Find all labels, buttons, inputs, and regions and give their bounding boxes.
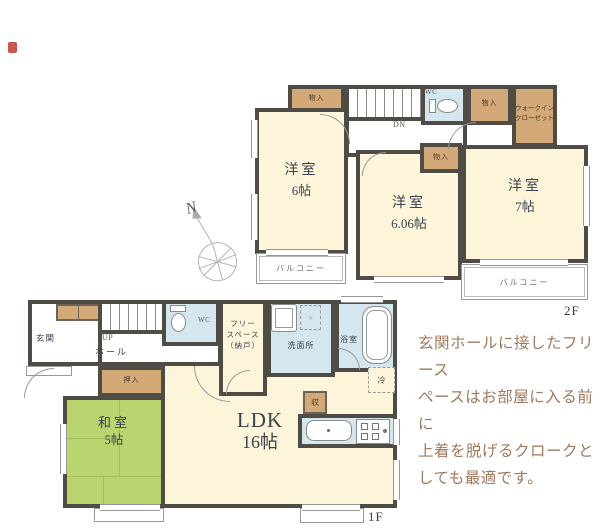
kitchen-stove-icon xyxy=(356,419,390,444)
room-2f-7jo-size: 7帖 xyxy=(462,198,588,216)
window xyxy=(251,194,258,240)
balcony-left-label: バルコニー xyxy=(276,263,326,274)
ldk-size: 16帖 xyxy=(210,430,310,454)
shoe-cabinet-icon xyxy=(56,304,100,321)
window xyxy=(341,296,383,303)
oshiire-label: 押入 xyxy=(98,375,165,385)
wic-label-line2: クローゼット xyxy=(512,112,557,122)
window xyxy=(302,504,360,511)
closet-2f-mid-label: 物入 xyxy=(420,152,462,162)
closet-2f-top-label: 物入 xyxy=(288,93,345,103)
window xyxy=(266,249,328,256)
washitsu-size: 5帖 xyxy=(63,432,165,449)
stairs-2f xyxy=(345,85,425,121)
window xyxy=(393,419,400,445)
window xyxy=(60,424,67,474)
annotation-line2: ペースはお部屋に入る前に xyxy=(418,384,606,438)
window xyxy=(480,259,568,266)
washitsu-name: 和室 xyxy=(63,414,165,432)
washing-machine-icon xyxy=(271,304,297,332)
stairs-1f xyxy=(98,300,166,334)
window xyxy=(100,504,160,511)
bathtub-icon xyxy=(362,306,392,364)
balcony-right-label: バルコニー xyxy=(500,277,550,288)
fridge-label: 冷 xyxy=(378,375,386,386)
wc-1f-label: WC xyxy=(198,316,210,324)
stove-burner-icon xyxy=(372,423,379,430)
room-2f-606jo-size: 6.06帖 xyxy=(356,215,462,233)
tatami-line xyxy=(103,476,104,504)
annotation-line3: 上着を脱げるクロークと xyxy=(418,438,606,465)
fridge-space-icon: 冷 xyxy=(368,367,395,393)
window xyxy=(251,120,258,158)
storage-box: 収 xyxy=(303,391,327,414)
stove-burner-icon xyxy=(361,433,368,440)
sink-faucet-icon xyxy=(327,429,330,432)
tatami-line xyxy=(67,476,161,477)
free-space-line3: （納戸） xyxy=(219,340,267,351)
washroom-label: 洗面所 xyxy=(267,340,335,351)
closet-2f-b-label: 物入 xyxy=(467,98,512,108)
toilet-2f-tank-icon xyxy=(429,99,436,113)
free-space-line2: スペース xyxy=(219,329,267,340)
floor-1f-label: 1F xyxy=(368,509,384,525)
stove-burner-icon xyxy=(372,433,379,440)
genkan-label: 玄関 xyxy=(36,332,55,344)
floor-2f-label: 2F xyxy=(564,303,580,319)
hall-label: ホール xyxy=(95,345,128,358)
free-space-line1: フリー xyxy=(219,318,267,329)
window xyxy=(583,166,590,226)
toilet-1f-bowl-icon xyxy=(171,313,186,332)
compass: N xyxy=(168,192,244,292)
stairs-dn-label: DN xyxy=(393,120,406,129)
balcony-2f-left: バルコニー xyxy=(256,253,346,284)
wc-2f-label: WC xyxy=(425,88,437,96)
room-2f-6jo-name: 洋室 xyxy=(255,162,348,181)
room-2f-606jo-name: 洋室 xyxy=(356,195,462,214)
annotation-line4: しても最適です。 xyxy=(418,465,606,492)
laundry-space-icon: × xyxy=(300,305,321,330)
stove-knob-icon xyxy=(383,429,387,433)
storage-label: 収 xyxy=(311,397,319,408)
red-mark xyxy=(8,42,17,53)
room-2f-7jo-name: 洋室 xyxy=(462,178,588,197)
annotation-text: 玄関ホールに接したフリース ペースはお部屋に入る前に 上着を脱げるクロークと し… xyxy=(418,330,606,492)
room-2f-6jo-size: 6帖 xyxy=(255,182,348,200)
toilet-2f-bowl-icon xyxy=(437,99,458,113)
floorplan-canvas: DN WC 物入 物入 ウォークイン クローゼット 洋室 6帖 物入 洋室 6.… xyxy=(0,0,606,531)
window xyxy=(374,276,444,283)
toilet-1f-tank-icon xyxy=(170,305,186,312)
window xyxy=(393,460,400,500)
annotation-line1: 玄関ホールに接したフリース xyxy=(418,330,606,384)
stairs-up-label: UP xyxy=(102,333,113,342)
wic-label-line1: ウォークイン xyxy=(512,102,557,112)
washitsu-room xyxy=(63,396,165,508)
bathroom-label: 浴室 xyxy=(336,334,362,345)
stove-burner-icon xyxy=(361,423,368,430)
balcony-2f-right: バルコニー xyxy=(461,264,588,300)
